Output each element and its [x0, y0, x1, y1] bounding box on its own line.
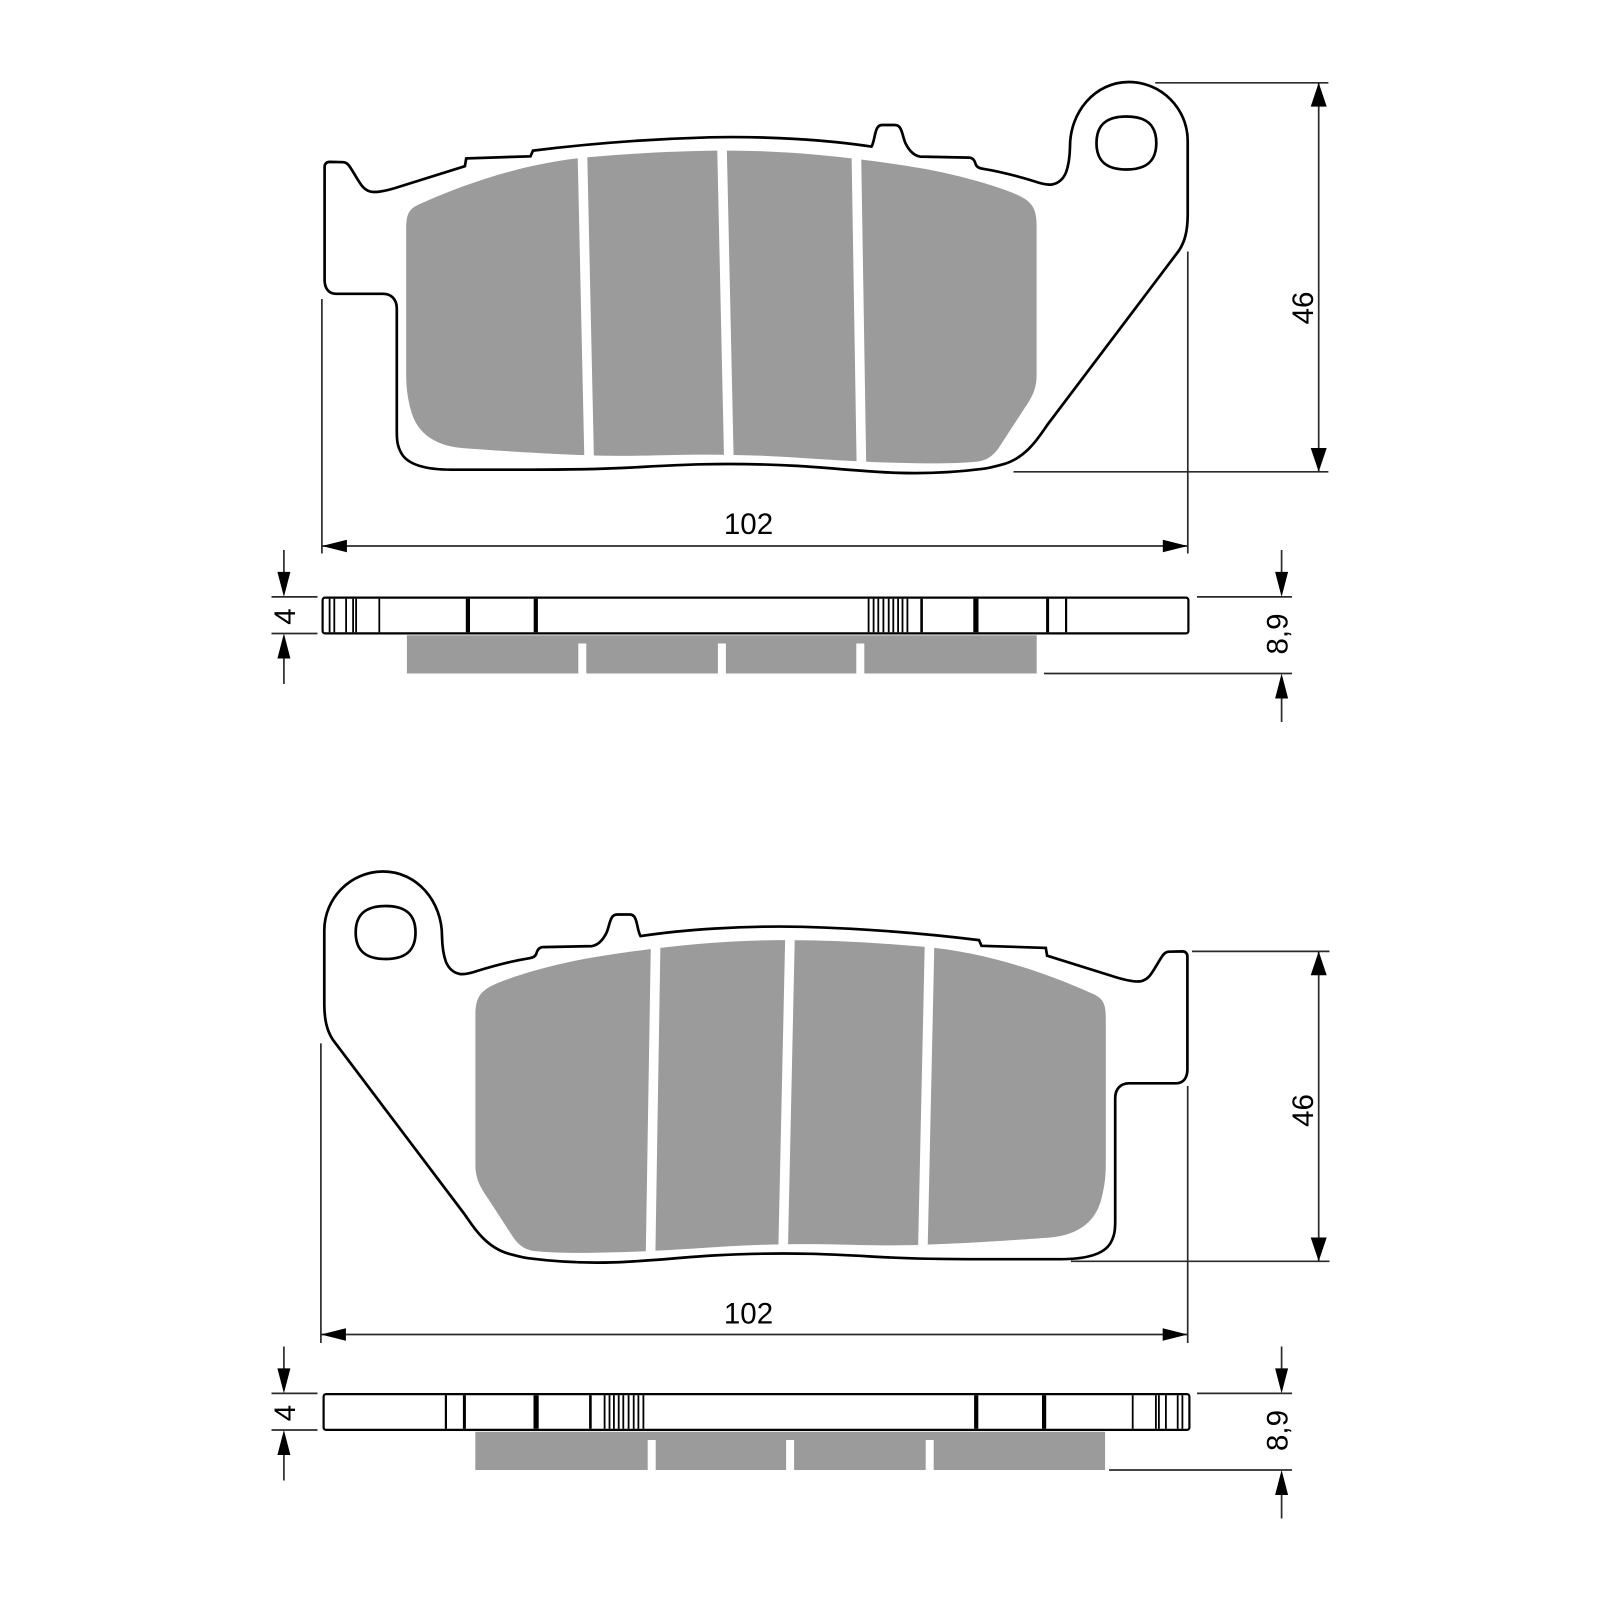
- svg-text:102: 102: [724, 1298, 773, 1331]
- svg-text:8,9: 8,9: [1262, 1410, 1295, 1451]
- svg-text:4: 4: [269, 1405, 302, 1421]
- svg-text:102: 102: [724, 508, 773, 541]
- svg-text:46: 46: [1287, 292, 1320, 325]
- svg-text:46: 46: [1287, 1094, 1320, 1127]
- svg-text:8,9: 8,9: [1262, 613, 1295, 654]
- svg-text:4: 4: [269, 608, 302, 624]
